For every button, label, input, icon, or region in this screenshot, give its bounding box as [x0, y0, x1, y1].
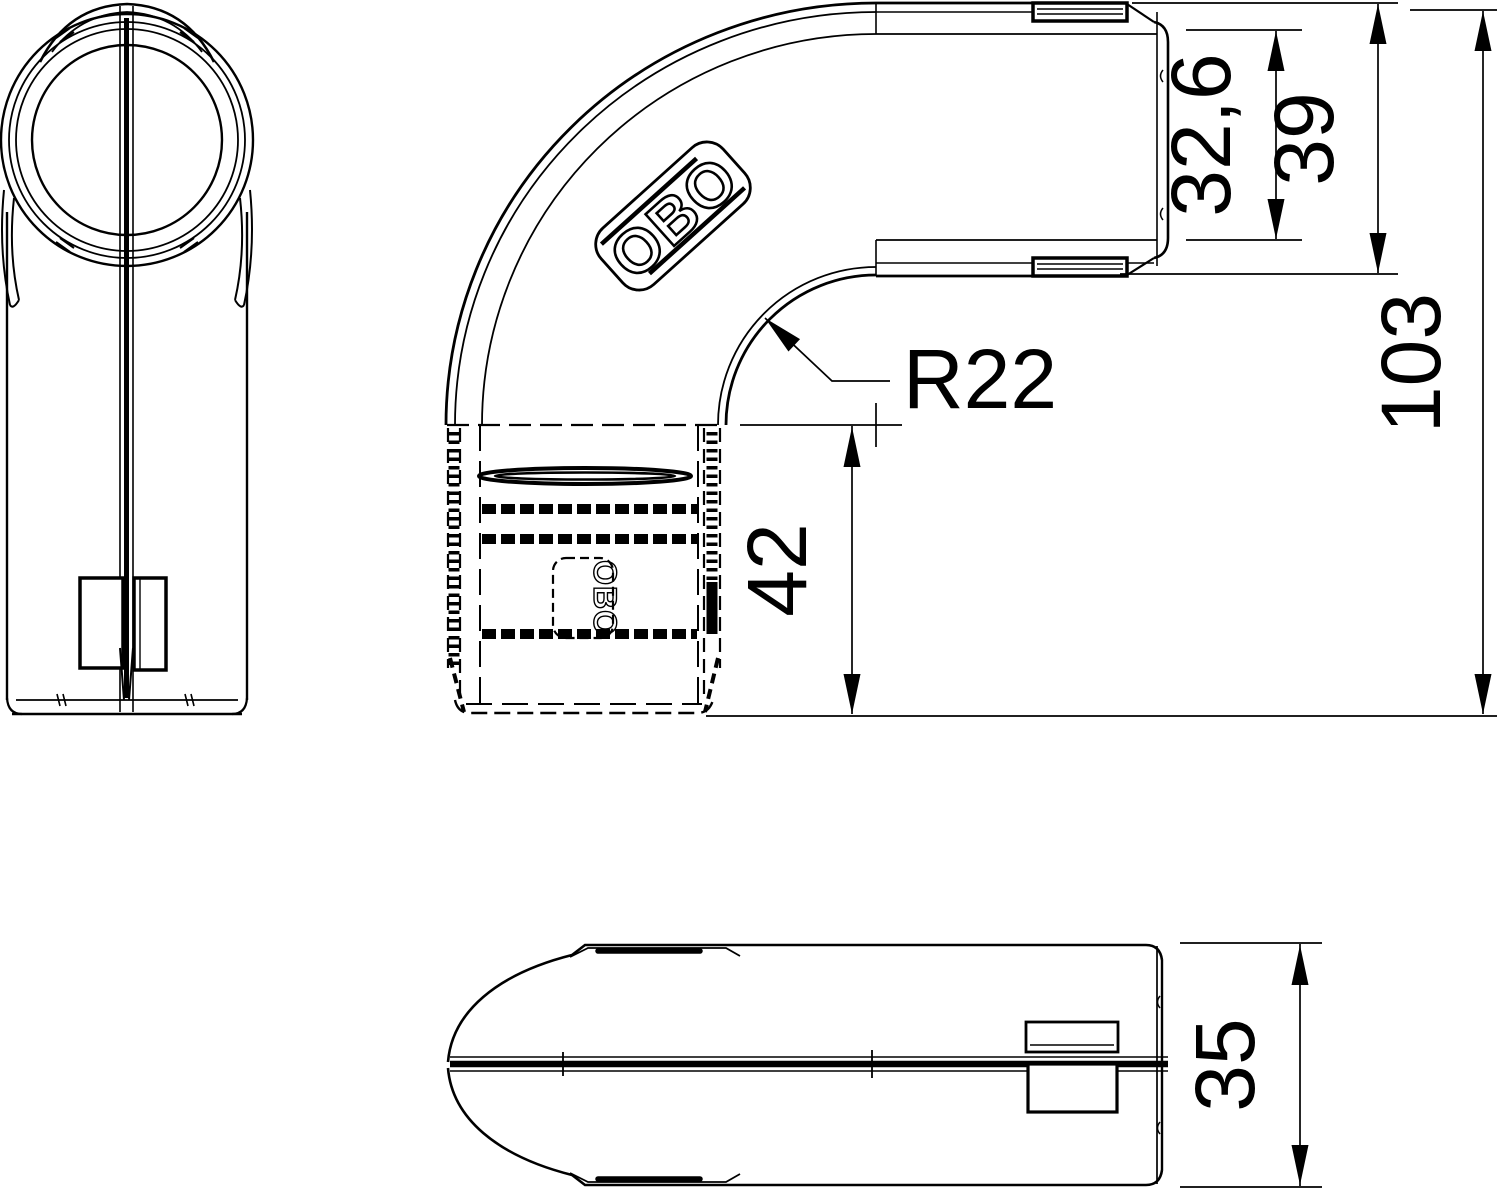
dim-arrow	[1268, 199, 1285, 239]
bend-fillet-arc-2	[718, 267, 876, 425]
leader-line	[765, 318, 890, 381]
dim-arrow	[1475, 674, 1492, 714]
latch-top	[1026, 1022, 1118, 1052]
latch-bottom	[1028, 1064, 1117, 1112]
dim-arrow	[844, 427, 861, 467]
dim-arrow	[1475, 11, 1492, 51]
chamfer-bottom	[1127, 258, 1154, 275]
socket-bottom-dashed	[455, 700, 713, 713]
end-connector	[876, 3, 1168, 276]
technical-drawing-quick-pipe-bend: OBO OBO	[0, 0, 1500, 1191]
dim-arrow	[1268, 31, 1285, 71]
dim-arrow	[1292, 945, 1309, 985]
dim-bend-radius: R22	[759, 312, 1057, 426]
logo-text-small: OBO	[587, 560, 623, 636]
dim-label-profile-width: 35	[1178, 1018, 1272, 1111]
dim-label-connector-height: 39	[1257, 92, 1351, 185]
retaining-tab-bottom	[1033, 258, 1127, 276]
latch-left	[80, 578, 123, 668]
latch-right	[134, 578, 166, 670]
socket-slot	[479, 468, 691, 484]
dim-label-inner-opening: 32,6	[1154, 53, 1248, 217]
dim-insertion-depth: 42	[730, 403, 902, 714]
socket-hidden-detail: OBO	[447, 425, 722, 713]
retaining-tab-top	[1033, 3, 1127, 21]
side-view	[1, 4, 253, 714]
bottom-view	[448, 945, 1168, 1185]
dimensions: 32,6 39 103 42	[706, 3, 1497, 1187]
dim-profile-width: 35	[1178, 943, 1322, 1187]
dim-arrow	[1370, 233, 1387, 273]
dim-label-overall-length: 103	[1364, 293, 1458, 433]
edge-notch-top	[1158, 996, 1161, 1008]
chamfer-top	[1127, 4, 1154, 22]
edge-notch-bottom	[1158, 1122, 1161, 1134]
socket-slot-inner	[495, 473, 675, 480]
dim-arrow	[1370, 4, 1387, 44]
obo-logo-large: OBO	[587, 133, 760, 299]
dim-label-bend-radius: R22	[903, 332, 1057, 426]
left-ear	[2, 190, 19, 307]
dim-arrow	[844, 674, 861, 714]
dim-arrow	[1292, 1145, 1309, 1185]
bend-fillet-arc	[726, 275, 876, 425]
right-ear	[235, 190, 252, 307]
drawing-canvas: OBO OBO	[0, 0, 1500, 1191]
dim-label-insertion-depth: 42	[730, 523, 824, 616]
